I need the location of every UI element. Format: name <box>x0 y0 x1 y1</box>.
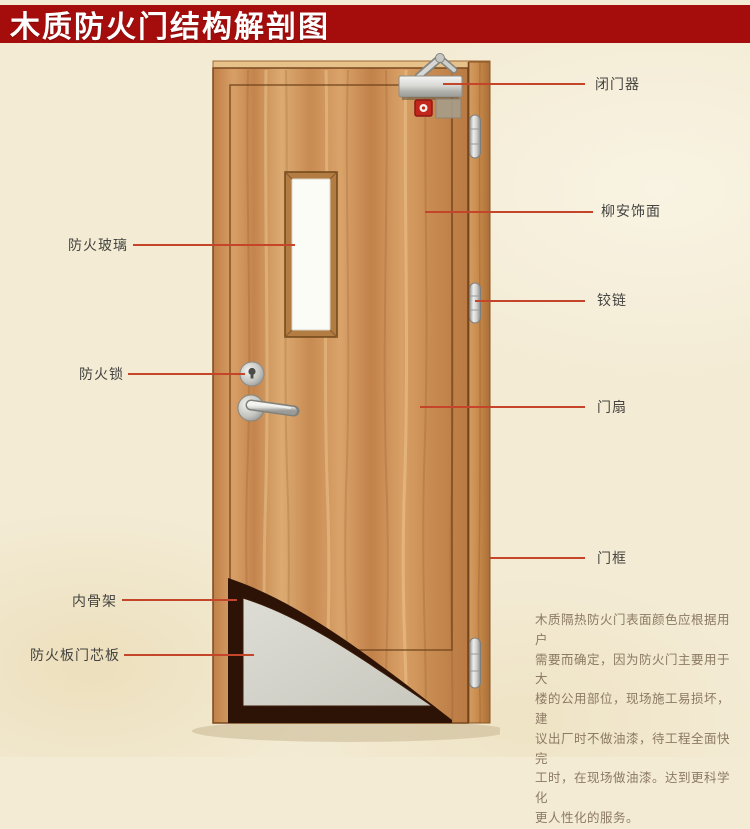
callout-label-hinge: 铰链 <box>597 291 627 309</box>
callout-label-fire-lock: 防火锁 <box>79 365 124 383</box>
door-illustration <box>190 50 500 750</box>
page-background: 木质防火门结构解剖图 <box>0 0 750 757</box>
pointer-line-fire-glass <box>133 244 295 246</box>
callout-label-door-leaf: 门扇 <box>597 398 627 416</box>
pointer-line-door-leaf <box>420 406 585 408</box>
callout-label-door-closer: 闭门器 <box>595 75 640 93</box>
description-text: 木质隔热防火门表面颜色应根据用户 需要而确定，因为防火门主要用于大 楼的公用部位… <box>535 611 735 829</box>
metal-plate <box>436 99 461 118</box>
pointer-line-inner-skeleton <box>122 599 237 601</box>
callout-label-inner-skeleton: 内骨架 <box>72 592 117 610</box>
callout-label-fire-board-core: 防火板门芯板 <box>30 646 120 664</box>
pointer-line-hinge <box>475 300 585 302</box>
hinge-bottom <box>470 638 481 688</box>
callout-label-lauan-veneer: 柳安饰面 <box>601 202 661 220</box>
door-frame <box>469 62 490 723</box>
title-banner: 木质防火门结构解剖图 <box>0 5 750 43</box>
callout-label-door-frame: 门框 <box>597 549 627 567</box>
door-closer <box>399 54 462 101</box>
pointer-line-fire-lock <box>128 373 245 375</box>
pointer-line-lauan-veneer <box>425 211 593 213</box>
hinge-middle <box>470 283 481 323</box>
pointer-line-fire-board-core <box>124 654 254 656</box>
fire-glass-window <box>285 172 337 337</box>
hinge-top <box>470 115 481 158</box>
page-title: 木质防火门结构解剖图 <box>0 2 330 46</box>
fire-badge <box>415 100 432 116</box>
callout-label-fire-glass: 防火玻璃 <box>68 236 128 254</box>
pointer-line-door-frame <box>490 557 585 559</box>
pointer-line-door-closer <box>443 83 585 85</box>
